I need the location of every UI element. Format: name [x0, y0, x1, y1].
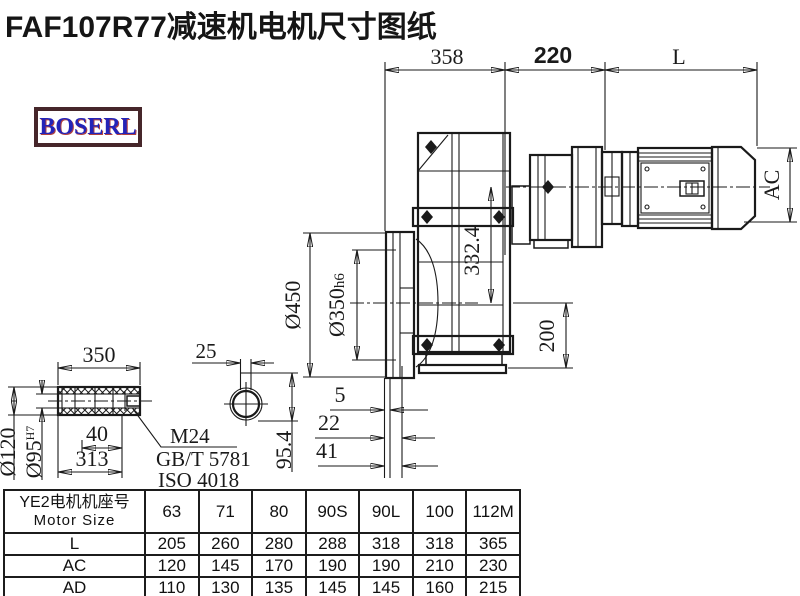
dim-200: 200 [534, 320, 559, 353]
dim-d350: Ø350h6 [324, 273, 349, 337]
dim-358: 358 [431, 44, 464, 69]
table-row-AD: AD 110 130 135 145 145 160 215 [4, 577, 520, 596]
thread-callout: M24 [170, 424, 210, 448]
cell: 365 [466, 533, 520, 555]
cell: 210 [413, 555, 467, 577]
cell: 135 [252, 577, 306, 596]
dimension-200: 200 [508, 303, 573, 368]
motor-size-table: YE2电机机座号 Motor Size 63 71 80 90S 90L 100… [3, 489, 521, 596]
header-en: Motor Size [5, 512, 144, 530]
header-cn: YE2电机机座号 [5, 493, 144, 512]
dimension-stack-5-22-41: 5 22 41 [315, 366, 438, 478]
cell: 288 [306, 533, 360, 555]
col-header: 112M [466, 490, 520, 533]
dim-332: 332.4 [459, 226, 484, 276]
dim-ac: AC [759, 170, 784, 201]
dim-25: 25 [196, 339, 217, 363]
drawing-sheet: FAF107R77减速机电机尺寸图纸 BOSERL 358 220 L [0, 0, 800, 596]
dim-5: 5 [335, 382, 346, 407]
dim-350: 350 [83, 342, 116, 367]
cell: 130 [199, 577, 253, 596]
cell: 318 [359, 533, 413, 555]
dim-954: 95.4 [271, 431, 296, 470]
col-header: 90L [359, 490, 413, 533]
dim-d450: Ø450 [280, 281, 305, 330]
col-header: 100 [413, 490, 467, 533]
dim-22: 22 [318, 410, 340, 435]
cell: 145 [359, 577, 413, 596]
cell: 280 [252, 533, 306, 555]
cell: 160 [413, 577, 467, 596]
shaft-detail: 350 Ø120 Ø95H7 40 313 M24 GB/T [0, 342, 251, 492]
table-header-label: YE2电机机座号 Motor Size [4, 490, 145, 533]
row-label: L [4, 533, 145, 555]
table-header-row: YE2电机机座号 Motor Size 63 71 80 90S 90L 100… [4, 490, 520, 533]
dimension-ac: AC [744, 148, 797, 222]
dim-41: 41 [316, 438, 338, 463]
cell: 190 [359, 555, 413, 577]
gearbox-housing [350, 133, 513, 378]
bolt-icon [421, 338, 433, 352]
cell: 145 [306, 577, 360, 596]
cell: 260 [199, 533, 253, 555]
dim-L: L [672, 44, 685, 69]
col-header: 90S [306, 490, 360, 533]
dim-40: 40 [86, 421, 108, 446]
cell: 205 [145, 533, 199, 555]
col-header: 80 [252, 490, 306, 533]
col-header: 63 [145, 490, 199, 533]
cell: 318 [413, 533, 467, 555]
cell: 215 [466, 577, 520, 596]
bolt-icon [421, 210, 433, 224]
cell: 190 [306, 555, 360, 577]
cell: 145 [199, 555, 253, 577]
col-header: 71 [199, 490, 253, 533]
row-label: AD [4, 577, 145, 596]
bolt-icon [425, 140, 437, 154]
cell: 230 [466, 555, 520, 577]
row-label: AC [4, 555, 145, 577]
table-row-AC: AC 120 145 170 190 190 210 230 [4, 555, 520, 577]
cell: 120 [145, 555, 199, 577]
dim-313: 313 [76, 446, 109, 471]
dim-d120: Ø120 [0, 428, 20, 477]
table-row-L: L 205 260 280 288 318 318 365 [4, 533, 520, 555]
motor [622, 147, 755, 229]
dimension-332: 332.4 [459, 187, 491, 303]
dim-220: 220 [534, 42, 572, 68]
cell: 170 [252, 555, 306, 577]
cell: 110 [145, 577, 199, 596]
